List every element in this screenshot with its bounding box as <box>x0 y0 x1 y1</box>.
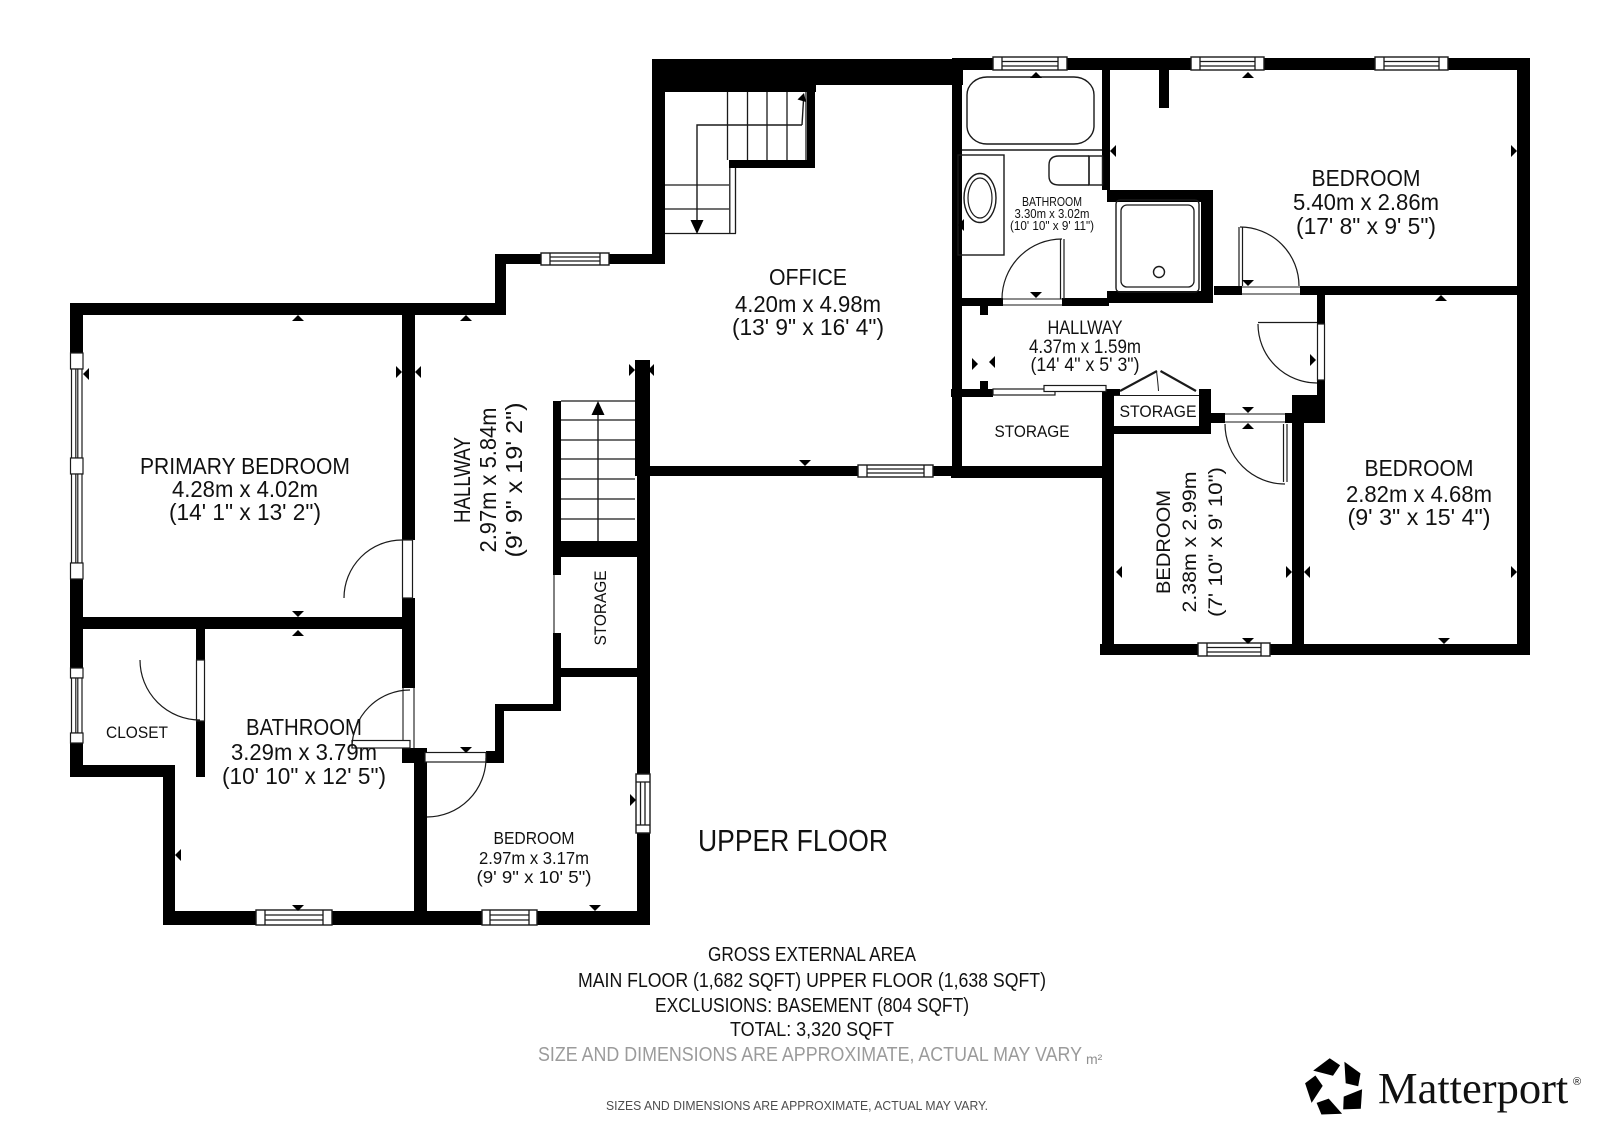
svg-text:(10' 10" x 9' 11"): (10' 10" x 9' 11") <box>1010 219 1094 233</box>
svg-text:(10' 10" x 12' 5"): (10' 10" x 12' 5") <box>222 763 386 789</box>
svg-text:2.38m x 2.99m: 2.38m x 2.99m <box>1179 472 1201 613</box>
svg-text:3.29m x 3.79m: 3.29m x 3.79m <box>231 739 377 765</box>
svg-text:MAIN FLOOR (1,682 SQFT) UPPER: MAIN FLOOR (1,682 SQFT) UPPER FLOOR (1,6… <box>578 969 1046 992</box>
svg-text:BEDROOM: BEDROOM <box>1312 165 1421 191</box>
svg-text:TOTAL: 3,320 SQFT: TOTAL: 3,320 SQFT <box>730 1018 894 1041</box>
svg-text:GROSS EXTERNAL AREA: GROSS EXTERNAL AREA <box>708 943 916 966</box>
svg-text:(14' 4" x 5' 3"): (14' 4" x 5' 3") <box>1031 354 1140 376</box>
svg-text:m²: m² <box>1086 1051 1103 1067</box>
svg-text:BATHROOM: BATHROOM <box>246 714 362 740</box>
svg-text:(14' 1" x 13' 2"): (14' 1" x 13' 2") <box>169 499 321 525</box>
svg-text:SIZE AND DIMENSIONS ARE APPROX: SIZE AND DIMENSIONS ARE APPROXIMATE, ACT… <box>538 1043 1082 1066</box>
svg-text:5.40m x 2.86m: 5.40m x 2.86m <box>1293 189 1439 215</box>
svg-text:HALLWAY: HALLWAY <box>449 437 475 523</box>
svg-text:OFFICE: OFFICE <box>769 264 847 290</box>
svg-text:(9' 9" x 19' 2"): (9' 9" x 19' 2") <box>501 403 527 558</box>
svg-text:®: ® <box>1573 1076 1581 1088</box>
svg-text:STORAGE: STORAGE <box>1120 403 1197 421</box>
svg-text:BEDROOM: BEDROOM <box>1153 490 1175 594</box>
svg-text:BEDROOM: BEDROOM <box>1365 455 1474 481</box>
svg-text:2.97m x 3.17m: 2.97m x 3.17m <box>479 848 589 868</box>
svg-text:(17' 8" x 9' 5"): (17' 8" x 9' 5") <box>1296 213 1436 239</box>
svg-text:Matterport: Matterport <box>1378 1063 1569 1113</box>
svg-text:2.97m x 5.84m: 2.97m x 5.84m <box>475 408 501 553</box>
svg-text:(9' 3" x 15' 4"): (9' 3" x 15' 4") <box>1348 504 1491 530</box>
svg-text:BEDROOM: BEDROOM <box>494 828 575 848</box>
svg-text:STORAGE: STORAGE <box>995 423 1070 441</box>
svg-text:CLOSET: CLOSET <box>106 724 168 742</box>
svg-text:UPPER FLOOR: UPPER FLOOR <box>698 823 888 858</box>
svg-text:SIZES AND DIMENSIONS ARE APPRO: SIZES AND DIMENSIONS ARE APPROXIMATE, AC… <box>606 1099 988 1113</box>
svg-text:EXCLUSIONS: BASEMENT (804 SQFT: EXCLUSIONS: BASEMENT (804 SQFT) <box>655 994 969 1017</box>
svg-text:(7' 10" x 9' 10"): (7' 10" x 9' 10") <box>1205 467 1227 617</box>
svg-text:(9' 9" x 10' 5"): (9' 9" x 10' 5") <box>477 867 592 887</box>
svg-text:(13' 9" x 16' 4"): (13' 9" x 16' 4") <box>732 314 884 340</box>
svg-text:STORAGE: STORAGE <box>592 571 610 646</box>
